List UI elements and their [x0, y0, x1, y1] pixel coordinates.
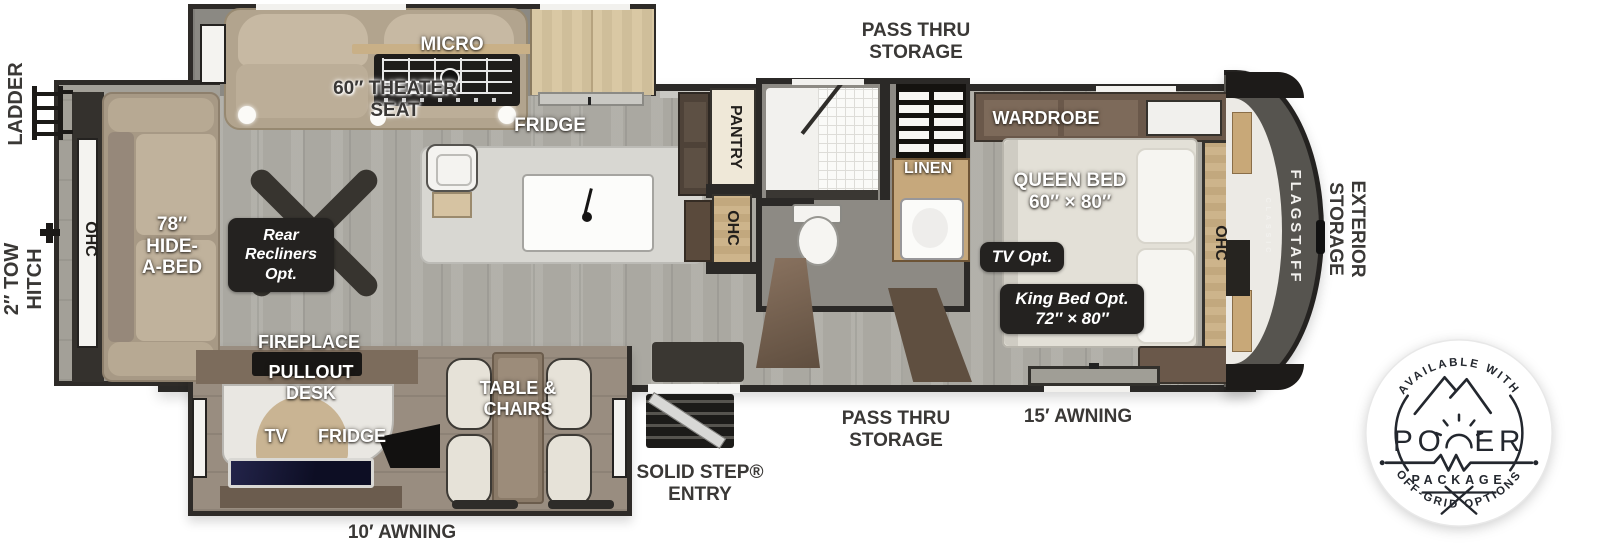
dinette-chair	[546, 434, 592, 506]
fireplace-label: FIREPLACE	[229, 332, 389, 353]
queen-bed-label: QUEEN BED 60″ × 80″	[985, 170, 1155, 213]
awning-10-label: 10′ AWNING	[322, 522, 482, 544]
linen-closet	[896, 84, 966, 160]
bedroom-tv-credenza	[1028, 366, 1160, 386]
ladder-label: LADDER	[5, 39, 29, 169]
pullout-desk-label: PULLOUT DESK	[241, 362, 381, 403]
linen-label: LINEN	[883, 160, 973, 178]
flagstaff-brand-name: FLAGSTAFF	[1287, 157, 1303, 297]
desk-fridge-label: FRIDGE	[302, 426, 402, 447]
dinette-foot-rail	[452, 500, 518, 509]
bedroom-bottom-window-slot	[1044, 386, 1130, 392]
front-cap-top-trim	[1226, 72, 1304, 98]
pass-thru-top-label: PASS THRU STORAGE	[836, 20, 996, 63]
island-stool-seat	[432, 192, 472, 218]
kitchen-ohc-base	[706, 262, 756, 274]
power-package-badge: AVAILABLE WITH PO ER PACKAGE	[1363, 337, 1555, 529]
desk-tv-label: TV	[251, 426, 301, 447]
king-bed-option-label: King Bed Opt. 72″ × 80″	[1000, 284, 1144, 334]
flagstaff-brand-sub: CLASSIC	[1263, 157, 1270, 297]
micro-label: MICRO	[392, 34, 512, 56]
bath-sink	[900, 198, 964, 260]
table-chairs-label: TABLE & CHAIRS	[453, 378, 583, 419]
desk-slide-left-window	[192, 398, 207, 478]
theater-seat-label: 60″ THEATER SEAT	[285, 78, 505, 121]
wardrobe-mirror	[1146, 100, 1222, 136]
island-stool	[426, 144, 478, 192]
front-cap-bottom-trim	[1226, 364, 1304, 390]
badge-power-left: PO	[1393, 425, 1446, 458]
entry-mat	[652, 342, 744, 382]
refrigerator-front	[538, 92, 644, 106]
front-cap-shelf	[1232, 290, 1252, 352]
wardrobe-label: WARDROBE	[966, 108, 1126, 129]
slide-top-window-slot-2	[540, 4, 630, 10]
fridge-label: FRIDGE	[490, 115, 610, 137]
solid-step-entry-label: SOLID STEP® ENTRY	[615, 462, 785, 505]
pass-thru-bottom-label: PASS THRU STORAGE	[816, 408, 976, 451]
rear-ohc-label: OHC	[79, 209, 99, 269]
badge-package: PACKAGE	[1411, 473, 1506, 487]
dinette-table	[492, 352, 544, 504]
pantry-label: PANTRY	[722, 92, 744, 182]
bathroom-skylight-slot	[792, 79, 864, 85]
badge-power-right: ER	[1474, 425, 1525, 458]
kitchen-ohc-cabinet	[684, 200, 712, 262]
rear-recliners-option-label: Rear Recliners Opt.	[228, 218, 334, 292]
pillow	[1136, 248, 1196, 344]
awning-15-label: 15′ AWNING	[1003, 406, 1153, 428]
refrigerator-cabinet	[530, 9, 654, 95]
hide-a-bed-label: 78″ HIDE- A-BED	[112, 214, 232, 279]
slide-top-window-slot-1	[256, 4, 406, 10]
flagstaff-brand: FLAGSTAFF CLASSIC	[1276, 157, 1320, 297]
ladder-icon	[32, 86, 66, 140]
exterior-storage-label: EXTERIOR STORAGE	[1322, 169, 1368, 289]
power-package-badge-svg: AVAILABLE WITH PO ER PACKAGE	[1363, 337, 1555, 529]
desk-fridge	[228, 458, 374, 488]
tv-option-label: TV Opt.	[980, 242, 1064, 272]
tow-hitch-label: 2″ TOW HITCH	[1, 224, 45, 334]
slide-top-left-window	[200, 24, 226, 84]
desk-base-band	[220, 486, 402, 508]
entry-door-opening	[648, 384, 740, 393]
kitchen-ohc-label: OHC	[721, 198, 741, 258]
floorplan-canvas: LADDER 2″ TOW HITCH OHC 78″ HIDE- A	[0, 0, 1600, 554]
bedroom-ohc-label: OHC	[1209, 213, 1229, 273]
bath-wall-vertical	[880, 84, 890, 200]
bedroom-top-window-slot	[1096, 86, 1176, 92]
pantry-cabinet	[678, 92, 710, 196]
dinette-foot-rail	[548, 500, 614, 509]
dinette-chair	[446, 434, 492, 506]
